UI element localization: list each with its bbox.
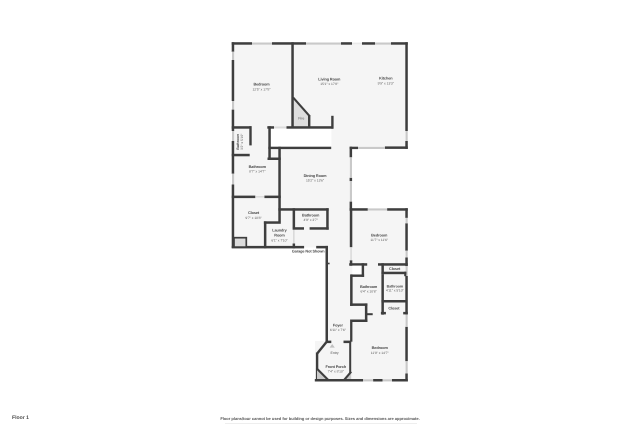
svg-text:Front Porch: Front Porch <box>325 365 346 369</box>
svg-text:Floor 1: Floor 1 <box>12 415 29 421</box>
svg-text:Dining Room: Dining Room <box>304 174 327 178</box>
svg-text:11'7" x 11'6": 11'7" x 11'6" <box>370 238 388 242</box>
svg-text:Floor plans/tour cannot be use: Floor plans/tour cannot be used for buil… <box>220 416 419 421</box>
svg-text:Garage Not Shown: Garage Not Shown <box>292 250 325 254</box>
svg-text:6'4" x 10'6": 6'4" x 10'6" <box>360 290 377 294</box>
svg-text:Bathroom: Bathroom <box>360 285 378 289</box>
svg-text:8'7" x 14'7": 8'7" x 14'7" <box>249 170 266 174</box>
svg-text:15'1" x 17'8": 15'1" x 17'8" <box>320 82 339 86</box>
svg-text:Bathroom: Bathroom <box>302 214 320 218</box>
svg-text:3'2" x 5'10": 3'2" x 5'10" <box>240 133 244 150</box>
svg-text:6'1" x 7'10": 6'1" x 7'10" <box>271 239 288 243</box>
svg-text:6'11" x 7'6": 6'11" x 7'6" <box>330 328 347 332</box>
svg-text:4'11" x 5'10": 4'11" x 5'10" <box>386 289 405 293</box>
svg-text:12'5" x 17'8": 12'5" x 17'8" <box>252 87 271 91</box>
svg-text:Bedroom: Bedroom <box>371 233 388 237</box>
svg-text:Fire: Fire <box>298 117 304 121</box>
svg-text:Room: Room <box>274 234 285 238</box>
svg-text:11'8" x 14'7": 11'8" x 14'7" <box>371 351 390 355</box>
svg-text:15'2" x 13'6": 15'2" x 13'6" <box>306 179 325 183</box>
svg-text:9'9" x 13'3": 9'9" x 13'3" <box>378 81 395 85</box>
svg-text:Closet: Closet <box>389 267 401 271</box>
svg-text:7'4" x 8'10": 7'4" x 8'10" <box>328 369 345 373</box>
svg-text:Kitchen: Kitchen <box>379 77 393 81</box>
svg-text:Bedroom: Bedroom <box>253 83 270 87</box>
svg-text:Laundry: Laundry <box>272 229 287 233</box>
svg-text:Closet: Closet <box>248 211 260 215</box>
svg-text:9'7" x 18'8": 9'7" x 18'8" <box>245 216 262 220</box>
svg-text:Closet: Closet <box>388 306 400 310</box>
svg-text:Bedroom: Bedroom <box>372 346 389 350</box>
svg-text:4'9" x 3'7": 4'9" x 3'7" <box>303 218 318 222</box>
svg-text:Foyer: Foyer <box>333 324 344 328</box>
svg-text:Bathroom: Bathroom <box>249 165 267 169</box>
svg-text:Entry: Entry <box>331 351 339 355</box>
svg-text:Living Room: Living Room <box>318 77 341 81</box>
